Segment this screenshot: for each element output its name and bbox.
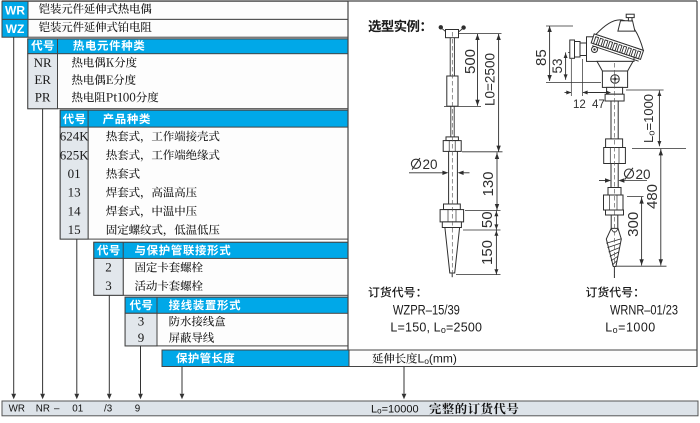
- svg-text:150: 150: [479, 240, 496, 265]
- svg-text:NR: NR: [34, 55, 52, 70]
- svg-text:14: 14: [68, 203, 82, 218]
- svg-text:2: 2: [105, 260, 112, 275]
- svg-text:L0=2500: L0=2500: [483, 53, 498, 106]
- svg-text:01: 01: [72, 404, 83, 415]
- svg-text:53: 53: [550, 58, 565, 73]
- svg-text:300: 300: [625, 212, 642, 237]
- svg-text:WRNR–01/23: WRNR–01/23: [610, 302, 678, 317]
- svg-text:15: 15: [68, 222, 81, 237]
- svg-text:50: 50: [479, 211, 496, 228]
- svg-text:9: 9: [135, 404, 140, 415]
- svg-text:85: 85: [533, 49, 550, 66]
- svg-text:PR: PR: [35, 90, 51, 105]
- svg-text:NR: NR: [36, 404, 50, 415]
- svg-text:3: 3: [105, 278, 112, 293]
- svg-text:12: 12: [573, 99, 586, 111]
- svg-text:20: 20: [423, 157, 438, 172]
- svg-text:625K: 625K: [60, 147, 90, 162]
- svg-text:480: 480: [644, 184, 661, 209]
- svg-text:–: –: [54, 404, 60, 415]
- svg-text:WZ: WZ: [6, 22, 25, 36]
- svg-text:130: 130: [480, 171, 497, 196]
- svg-text:3: 3: [138, 314, 145, 329]
- svg-text:WR: WR: [5, 4, 25, 18]
- svg-text:ER: ER: [34, 72, 51, 87]
- svg-text:01: 01: [68, 166, 81, 181]
- svg-text:13: 13: [68, 185, 81, 200]
- svg-text:500: 500: [462, 49, 479, 74]
- svg-text:WR: WR: [9, 404, 25, 415]
- svg-text:WZPR–15/39: WZPR–15/39: [393, 302, 460, 317]
- svg-text:9: 9: [138, 330, 145, 345]
- svg-text:624K: 624K: [60, 129, 90, 144]
- svg-text:L=150,Lo=2500: L=150,Lo=2500: [390, 320, 482, 334]
- svg-text:47: 47: [592, 99, 605, 111]
- svg-text:/3: /3: [104, 404, 113, 415]
- svg-text:20: 20: [636, 167, 651, 182]
- svg-text:Lo(mm): Lo(mm): [418, 352, 457, 367]
